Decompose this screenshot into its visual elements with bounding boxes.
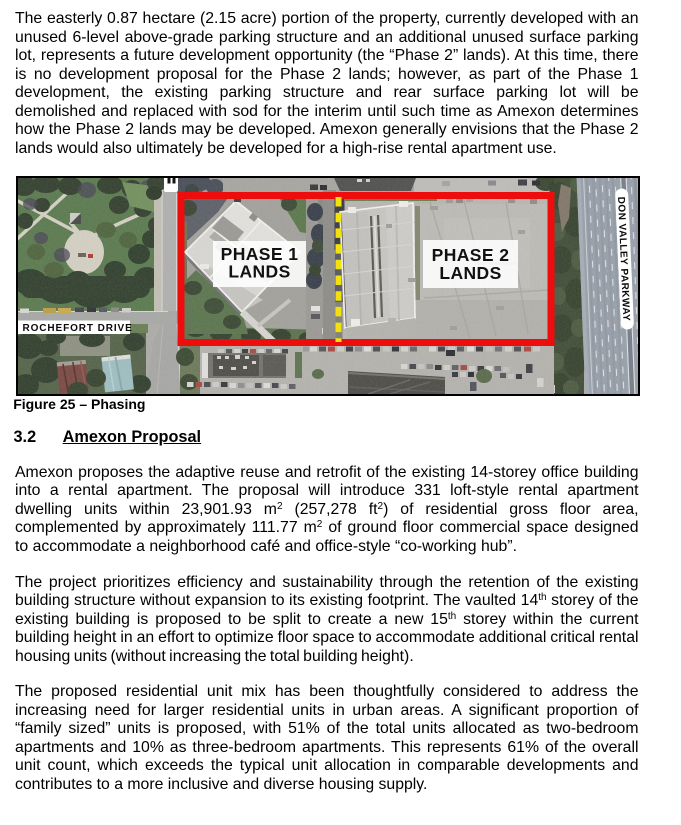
svg-text:LANDS: LANDS	[228, 262, 290, 282]
svg-text:LANDS: LANDS	[439, 263, 501, 283]
svg-text:ROCHEFORT DRIVE: ROCHEFORT DRIVE	[23, 323, 133, 334]
